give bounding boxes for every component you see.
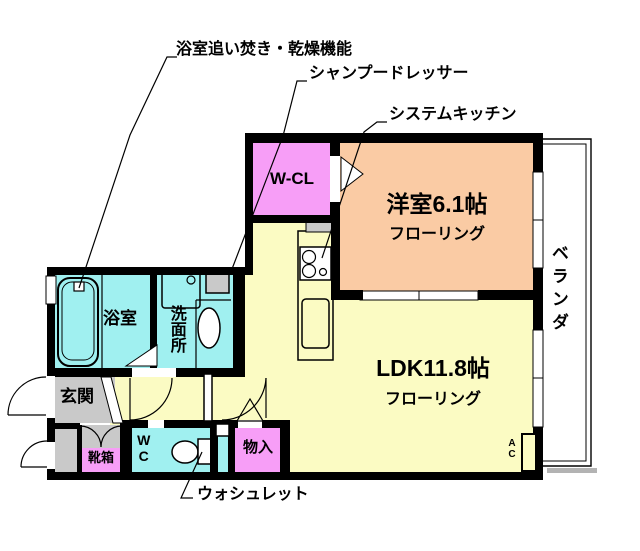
wall-top — [245, 133, 543, 143]
entrance-side-floor — [55, 429, 77, 472]
bathroom-window — [46, 276, 56, 304]
label-ldk-floor: フローリング — [333, 392, 533, 409]
label-veranda: ベランダ — [549, 244, 567, 366]
callout-bath-reheat: 浴室追い焚き・乾燥機能 — [176, 42, 352, 59]
utility-door-swing — [21, 441, 47, 467]
label-walk-in-closet: W-CL — [253, 170, 331, 188]
leader-bath-reheat — [79, 57, 177, 288]
entrance-door-opening — [47, 376, 55, 418]
label-bathroom: 浴室 — [103, 310, 137, 328]
ac-slot — [522, 434, 536, 471]
sliding-door-stop — [356, 291, 363, 300]
toilet-tank — [198, 439, 212, 464]
wall-storage-right — [280, 423, 290, 472]
toilet-bowl — [172, 441, 198, 463]
hall-floor — [245, 268, 333, 378]
label-entrance: 玄関 — [60, 388, 94, 406]
wall-washroom-right — [233, 267, 245, 377]
wall-left-upper — [245, 133, 253, 275]
label-ac: AC — [506, 438, 517, 470]
floor-plan: 浴室追い焚き・乾燥機能 シャンプードレッサー システムキッチン ウォシュレット … — [0, 0, 640, 551]
wcl-door-opening — [330, 156, 340, 202]
callout-shampoo-dresser: シャンプードレッサー — [309, 66, 469, 83]
label-ldk: LDK11.8帖 — [333, 356, 533, 380]
label-shoe-box: 靴箱 — [80, 451, 122, 465]
shampoo-dresser-basin — [198, 308, 220, 348]
veranda-shadow — [547, 468, 597, 473]
callout-washlet: ウォシュレット — [197, 487, 309, 504]
wall-bottom — [47, 472, 543, 480]
western-room-floor — [340, 143, 533, 291]
wall-washroom-top — [47, 267, 253, 275]
label-western-room: 洋室6.1帖 — [340, 192, 534, 216]
wall-western-bottom-right — [478, 290, 543, 300]
wc-door-opening — [148, 420, 164, 428]
label-western-room-floor: フローリング — [340, 227, 534, 244]
entrance-door-swing — [8, 377, 46, 415]
wall-entrance-bottom — [47, 423, 80, 429]
label-storage: 物入 — [235, 440, 281, 456]
label-wc: WC — [136, 432, 151, 468]
label-washroom: 洗面所 — [167, 305, 184, 375]
utility-door-opening — [47, 442, 55, 469]
hall-wall-stub — [204, 374, 212, 421]
wall-shoebox-left — [77, 425, 82, 472]
wc-shelf — [216, 424, 229, 436]
wall-wcl-bottom — [245, 215, 340, 223]
callout-system-kitchen: システムキッチン — [389, 107, 517, 124]
washroom-counter — [206, 272, 229, 293]
